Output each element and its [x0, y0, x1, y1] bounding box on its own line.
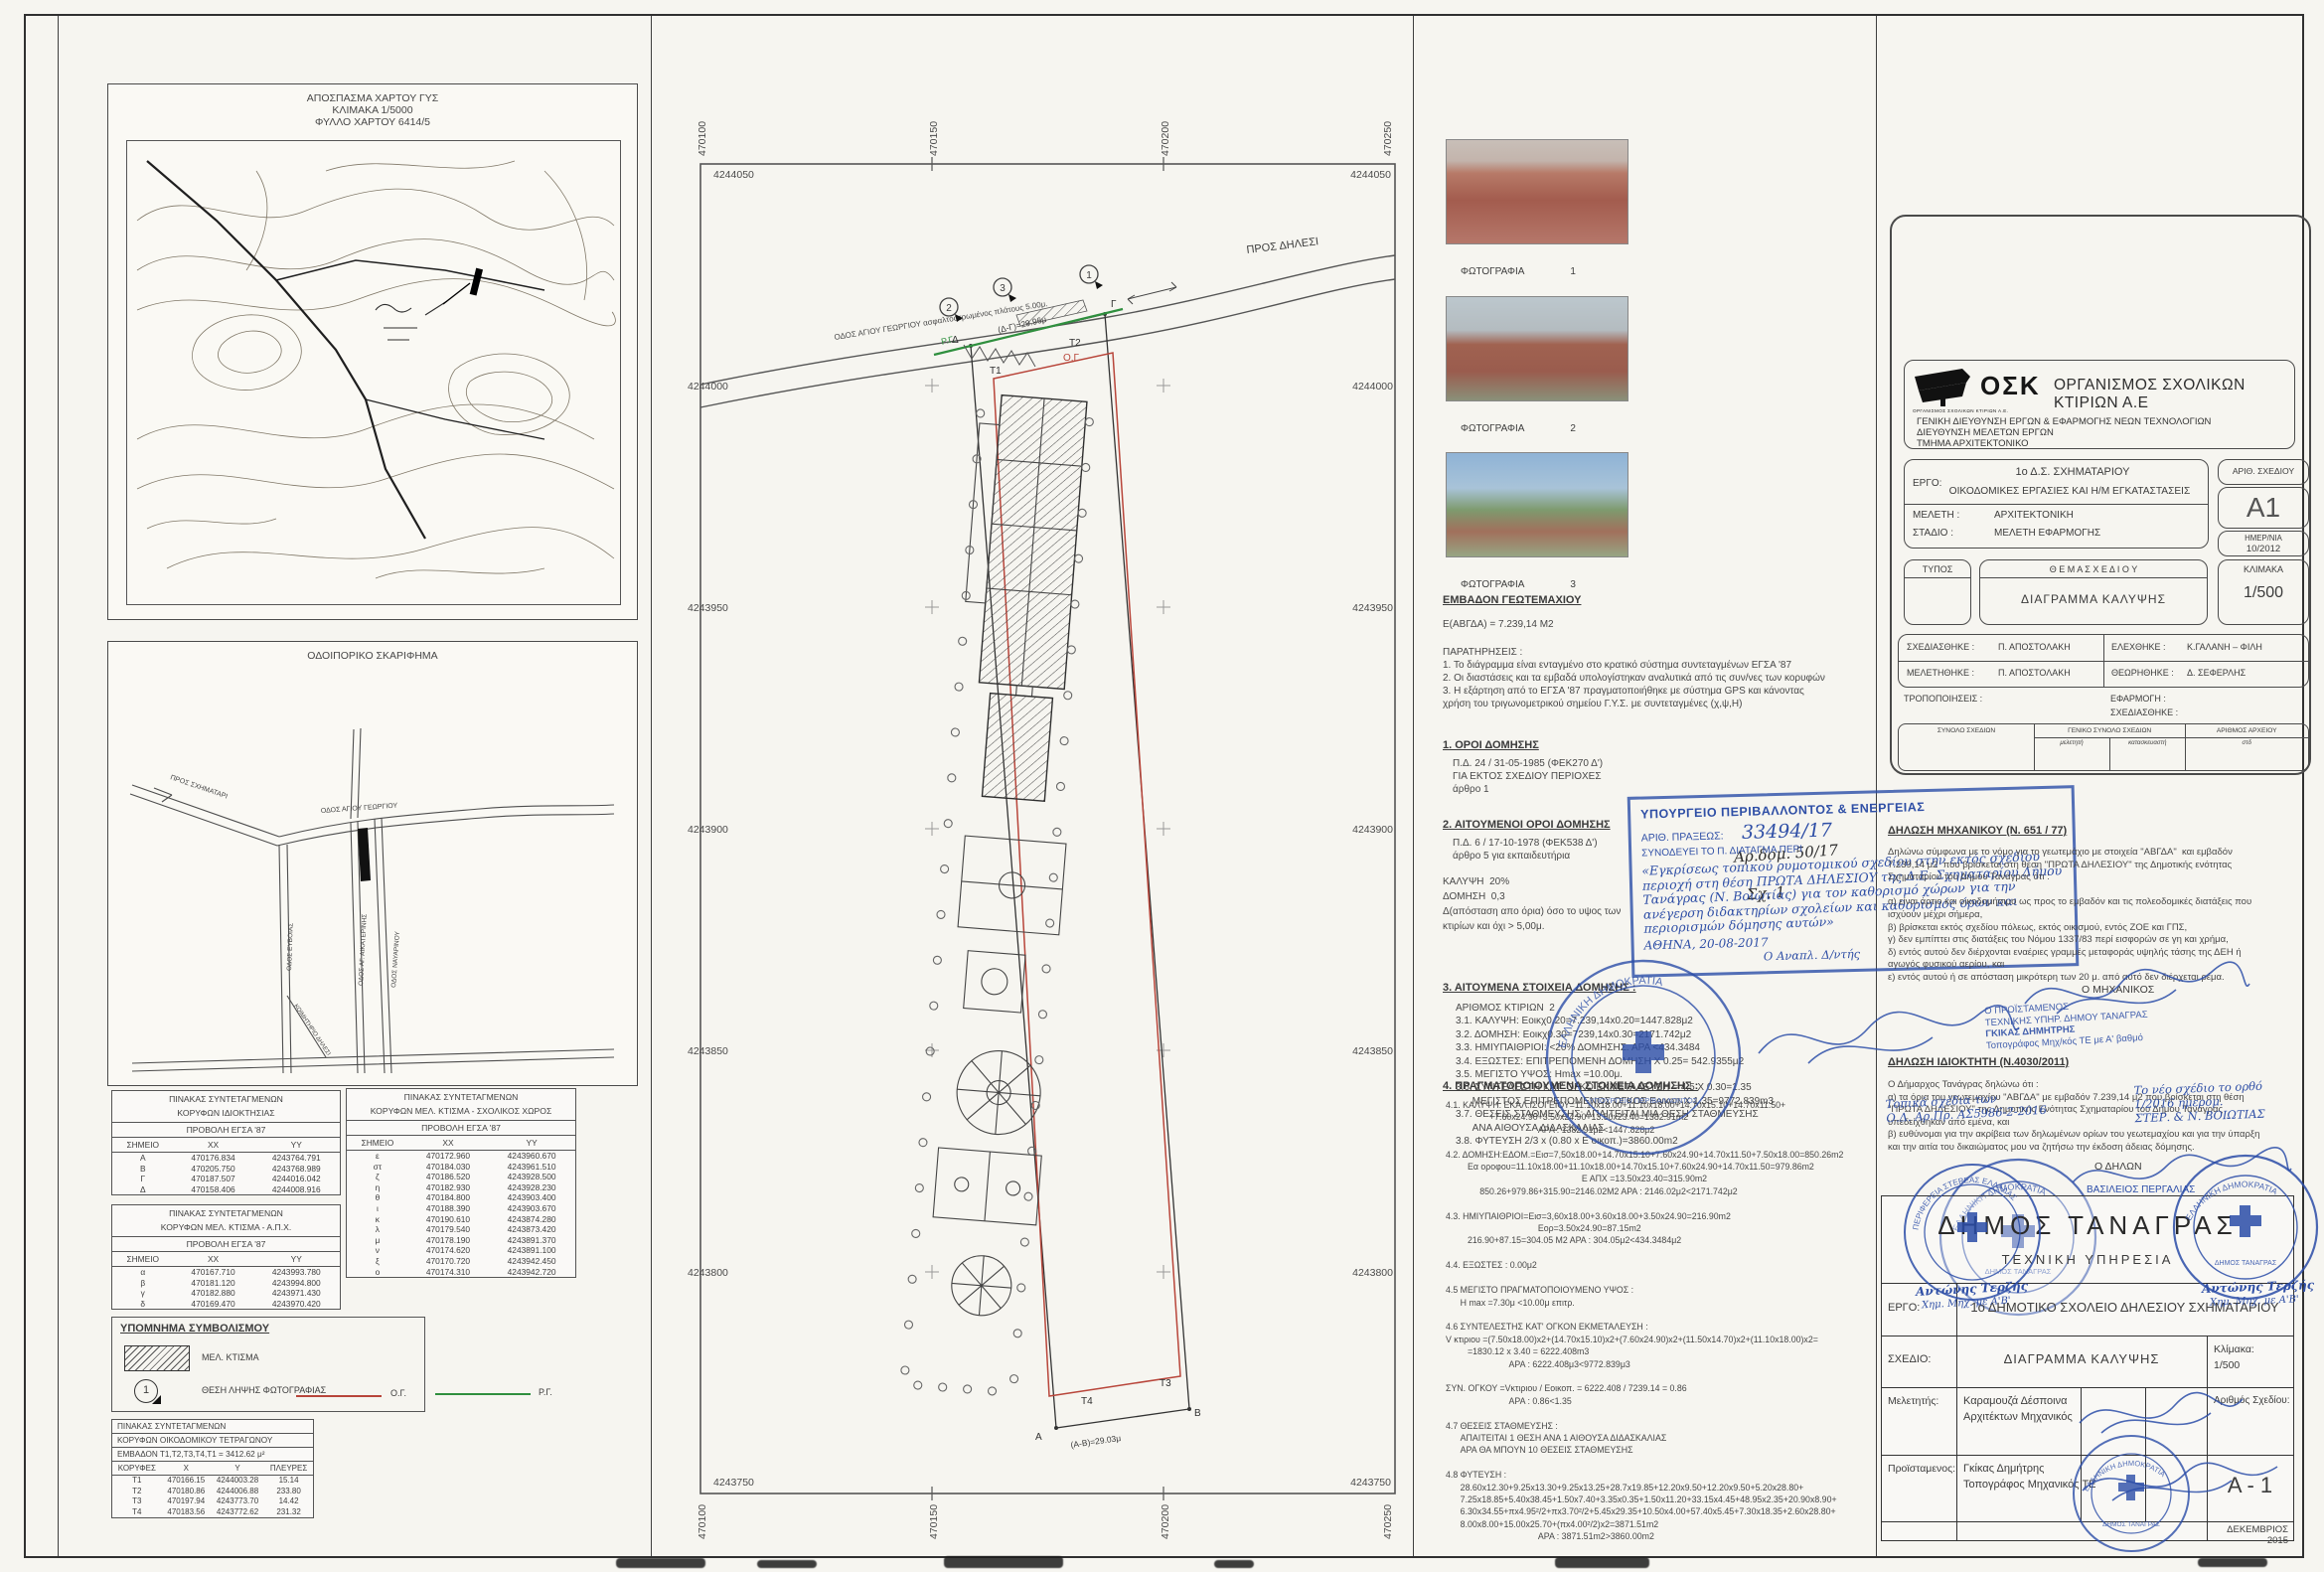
og-line-sample [296, 1395, 382, 1397]
table-row: ε470172.9604243960.670 [347, 1151, 575, 1162]
table-row: δ470169.4704243970.420 [112, 1299, 340, 1310]
table-cell: Β [112, 1164, 174, 1175]
table-row: ν470174.6204243891.100 [347, 1245, 575, 1256]
table-cell: Α [112, 1153, 174, 1164]
table-cell: 470180.86 [162, 1487, 211, 1497]
table-row: Γ470187.5074244016.042 [112, 1174, 340, 1184]
table-cell: 4243764.791 [253, 1153, 340, 1164]
area-value: Ε(ΑΒΓΔΑ) = 7.239,14 Μ2 [1443, 618, 1554, 631]
svg-text:ΟΔΟΣ ΕΥΒΟΙΑΣ: ΟΔΟΣ ΕΥΒΟΙΑΣ [286, 923, 295, 971]
table-row: θ470184.8004243903.400 [347, 1192, 575, 1203]
table-cell: 470166.15 [162, 1476, 211, 1487]
legend-box: ΥΠΟΜΝΗΜΑ ΣΥΜΒΟΛΙΣΜΟΥ ΜΕΛ. ΚΤΙΣΜΑ 1 ΘΕΣΗ … [111, 1317, 425, 1412]
svg-text:Τ4: Τ4 [1081, 1396, 1093, 1407]
subject-label: Θ Ε Μ Α Σ Χ Ε Δ Ι Ο Υ [1980, 564, 2207, 578]
table-cell: 233.80 [264, 1487, 313, 1497]
legend-label-og: Ο.Γ. [390, 1388, 406, 1398]
owner-declaration-title: ΔΗΛΩΣΗ ΙΔΙΟΚΤΗΤΗ (Ν.4030/2011) [1888, 1056, 2069, 1068]
project-box: ΕΡΓΟ: 1ο Δ.Σ. ΣΧΗΜΑΤΑΡΙΟΥ ΟΙΚΟΔΟΜΙΚΕΣ ΕΡ… [1904, 459, 2209, 549]
table-cell: 4243960.670 [488, 1151, 575, 1162]
table-area: ΕΜΒΑΔΟΝ Τ1,Τ2,Τ3,Τ4,Τ1 = 3412.62 μ² [112, 1448, 313, 1462]
table-row: η470182.9304243928.230 [347, 1182, 575, 1193]
drawn-label: ΣΧΕΔΙΑΣΘΗΚΕ : [1907, 642, 1974, 652]
photo-2 [1446, 296, 1628, 401]
muni-designer-name: Καραμουζά Δέσποινα [1963, 1395, 2067, 1407]
table-cell: 470158.406 [174, 1184, 253, 1195]
table-cell: 470174.620 [408, 1245, 488, 1256]
scan-artifact [757, 1560, 817, 1568]
table-row: Α470176.8344243764.791 [112, 1153, 340, 1164]
table-cell: 470187.507 [174, 1174, 253, 1184]
site-plan: 470100 470150 470200 470250 470100 47015… [686, 94, 1401, 1545]
svg-text:470250: 470250 [1382, 121, 1394, 156]
table-cell: 470170.720 [408, 1256, 488, 1267]
table-cell: μ [347, 1235, 408, 1246]
muni-head-label: Προϊσταμενος: [1888, 1463, 1955, 1475]
table-cell: 470172.960 [408, 1151, 488, 1162]
table-cell: 4243942.720 [488, 1267, 575, 1278]
svg-text:ΠΡΟΣ ΣΧΗΜΑΤΑΡΙ: ΠΡΟΣ ΣΧΗΜΑΤΑΡΙ [169, 774, 229, 800]
table-cell: 4244016.042 [253, 1174, 340, 1184]
table-row: Τ3470197.944243773.7014.42 [112, 1496, 313, 1507]
table-cell: 4243768.989 [253, 1164, 340, 1175]
svg-text:470100: 470100 [697, 1504, 708, 1539]
coords-table-school-area: ΠΙΝΑΚΑΣ ΣΥΝΤΕΤΑΓΜΕΝΩΝ ΚΟΡΥΦΩΝ ΜΕΛ. ΚΤΙΣΜ… [346, 1088, 576, 1278]
table-cell: 470205.750 [174, 1164, 253, 1175]
table-cell: 4243874.280 [488, 1214, 575, 1225]
files-sub-c: στδ [2185, 739, 2308, 746]
topographic-map [126, 140, 621, 605]
legend-label-photo: ΘΕΣΗ ΛΗΨΗΣ ΦΩΤΟΓΡΑΦΙΑΣ [202, 1385, 326, 1395]
table-row: Β470205.7504243768.989 [112, 1164, 340, 1175]
map-scale: ΚΛΙΜΑΚΑ 1/5000 [108, 104, 637, 116]
drawn-value: Π. ΑΠΟΣΤΟΛΑΚΗ [1998, 642, 2071, 652]
svg-text:1: 1 [1086, 270, 1092, 281]
svg-text:4243800: 4243800 [1352, 1267, 1393, 1279]
column-header: YY [488, 1136, 575, 1151]
column-header: YY [253, 1252, 340, 1267]
sheet-no-label: ΑΡΙΘ. ΣΧΕΔΙΟΥ [2218, 459, 2309, 485]
table-cell: Τ2 [112, 1487, 162, 1497]
table-subtitle: ΚΟΡΥΦΩΝ ΜΕΛ. ΚΤΙΣΜΑ - ΣΧΟΛΙΚΟΣ ΧΩΡΟΣ [347, 1103, 575, 1117]
table-cell: 4244008.916 [253, 1184, 340, 1195]
study-value: ΑΡΧΙΤΕΚΤΟΝΙΚΗ [1994, 510, 2074, 521]
scan-artifact [2198, 1558, 2267, 1567]
panel-separator-1 [651, 16, 652, 1556]
head-engineer-stamp: Ο ΠΡΟΪΣΤΑΜΕΝΟΣΤΕΧΝΙΚΗΣ ΥΠΗΡ. ΔΗΜΟΥ ΤΑΝΑΓ… [1984, 998, 2149, 1052]
table-cell: 4243971.430 [253, 1288, 340, 1299]
legend-title: ΥΠΟΜΝΗΜΑ ΣΥΜΒΟΛΙΣΜΟΥ [120, 1323, 424, 1335]
area-title: ΕΜΒΑΔΟΝ ΓΕΩΤΕΜΑΧΙΟΥ [1443, 594, 1581, 606]
table-title: ΠΙΝΑΚΑΣ ΣΥΝΤΕΤΑΓΜΕΝΩΝ [112, 1091, 340, 1105]
svg-text:470250: 470250 [1382, 1504, 1394, 1539]
table-row: στ470184.0304243961.510 [347, 1162, 575, 1173]
legend-label-rg: Ρ.Γ. [539, 1387, 552, 1397]
table-cell: ο [347, 1267, 408, 1278]
files-strip: ΣΥΝΟΛΟ ΣΧΕΔΙΩΝ ΓΕΝΙΚΟ ΣΥΝΟΛΟ ΣΧΕΔΙΩΝ ΑΡΙ… [1898, 723, 2309, 771]
svg-text:4244050: 4244050 [1350, 169, 1391, 181]
table-cell: 4243773.70 [211, 1496, 264, 1507]
table-cell: 470174.310 [408, 1267, 488, 1278]
muni-sheet-number: Α - 1 [2207, 1473, 2293, 1498]
osk-header-box: ΟΣΚ ΟΡΓΑΝΙΣΜΟΣ ΣΧΟΛΙΚΩΝ ΚΤΙΡΙΩΝ Α.Ε. ΟΡΓ… [1904, 360, 2295, 449]
round-feature [950, 1254, 1014, 1319]
table-projection: ΠΡΟΒΟΛΗ ΕΓΣΑ '87 [112, 1236, 340, 1252]
table-row: κ470190.6104243874.280 [347, 1214, 575, 1225]
subject-value: ΔΙΑΓΡΑΜΜΑ ΚΑΛΥΨΗΣ [1980, 592, 2207, 606]
studied-label: ΜΕΛΕΤΗΘΗΚΕ : [1907, 668, 1974, 678]
column-header: Y [211, 1462, 264, 1476]
svg-text:470150: 470150 [928, 121, 940, 156]
column-header: ΣΗΜΕΙΟ [112, 1252, 174, 1267]
scan-artifact [616, 1558, 705, 1568]
table-cell: 4243961.510 [488, 1162, 575, 1173]
svg-text:4243850: 4243850 [688, 1045, 728, 1057]
muni-designer-label: Μελετητής: [1888, 1395, 1938, 1407]
stamp-cross-emblem [1623, 1031, 1664, 1073]
column-header: ΣΗΜΕΙΟ [347, 1136, 408, 1151]
scan-artifact [1214, 1560, 1254, 1568]
pad-b [964, 951, 1025, 1013]
column-header: ΠΛΕΥΡΕΣ [264, 1462, 313, 1476]
table-cell: ζ [347, 1172, 408, 1182]
column-header: X [162, 1462, 211, 1476]
studied-value: Π. ΑΠΟΣΤΟΛΑΚΗ [1998, 668, 2071, 678]
osk-logo [1913, 367, 1976, 408]
svg-text:4243750: 4243750 [713, 1477, 754, 1489]
table-row: Τ2470180.864244006.88233.80 [112, 1487, 313, 1497]
school-buildings [900, 393, 1101, 1398]
approved-value: Δ. ΣΕΦΕΡΛΗΣ [2187, 668, 2246, 678]
muni-drawing-label: ΣΧΕΔΙΟ: [1888, 1353, 1932, 1365]
checked-label: ΕΛΕΧΘΗΚΕ : [2111, 642, 2166, 652]
scan-artifact [1555, 1557, 1649, 1568]
svg-text:ΟΔΟΣ ΑΓΙΟΥ ΓΕΩΡΓΙΟΥ: ΟΔΟΣ ΑΓΙΟΥ ΓΕΩΡΓΙΟΥ [321, 803, 398, 815]
table-cell: 470178.190 [408, 1235, 488, 1246]
svg-text:470200: 470200 [1160, 121, 1171, 156]
svg-text:4243950: 4243950 [688, 602, 728, 614]
table-cell: β [112, 1278, 174, 1289]
checked-value: Κ.ΓΑΛΑΝΗ – ΦΙΛΗ [2187, 642, 2262, 652]
head-round-stamp: ΕΛΛΗΝΙΚΗ ΔΗΜΟΚΡΑΤΙΑ ΔΗΜΟΣ ΤΑΝΑΓΡΑΣ [2067, 1429, 2196, 1558]
table-cell: 470182.880 [174, 1288, 253, 1299]
table-cell: 470186.520 [408, 1172, 488, 1182]
table-cell: 231.32 [264, 1507, 313, 1518]
stage-label: ΣΤΑΔΙΟ : [1913, 528, 1953, 539]
table-row: λ470179.5404243873.420 [347, 1224, 575, 1235]
map-annotation-marks [376, 301, 447, 340]
table-subtitle: ΚΟΡΥΦΩΝ ΙΔΙΟΚΤΗΣΙΑΣ [112, 1105, 340, 1119]
table-title: ΠΙΝΑΚΑΣ ΣΥΝΤΕΤΑΓΜΕΝΩΝ [112, 1420, 313, 1434]
table-cell: 4243772.62 [211, 1507, 264, 1518]
osk-dept-1: ΓΕΝΙΚΗ ΔΙΕΥΘΥΝΣΗ ΕΡΓΩΝ & ΕΦΑΡΜΟΓΗΣ ΝΕΩΝ … [1917, 416, 2211, 427]
column-header: ΚΟΡΥΦΕΣ [112, 1462, 162, 1476]
table-cell: Τ1 [112, 1476, 162, 1487]
svg-text:470100: 470100 [697, 121, 708, 156]
coords-table-apx: ΠΙΝΑΚΑΣ ΣΥΝΤΕΤΑΓΜΕΝΩΝ ΚΟΡΥΦΩΝ ΜΕΛ. ΚΤΙΣΜ… [111, 1204, 341, 1310]
panel-separator-2 [1413, 16, 1414, 1556]
muni-designer-title: Αρχιτέκτων Μηχανικός [1963, 1411, 2073, 1423]
table-row: ζ470186.5204243928.500 [347, 1172, 575, 1182]
svg-text:4243900: 4243900 [688, 824, 728, 836]
table-cell: Τ3 [112, 1496, 162, 1507]
table-cell: 470197.94 [162, 1496, 211, 1507]
legend-label-building: ΜΕΛ. ΚΤΙΣΜΑ [202, 1352, 259, 1362]
svg-text:4243850: 4243850 [1352, 1045, 1393, 1057]
credits-box: ΣΧΕΔΙΑΣΘΗΚΕ : Π. ΑΠΟΣΤΟΛΑΚΗ ΕΛΕΧΘΗΚΕ : Κ… [1898, 634, 2309, 688]
ministry-round-stamp: ΕΛΛΗΝΙΚΗ ΔΗΜΟΚΡΑΤΙΑ ΥΠΟΥΡΓΕΙΟ ΠΕΡΙΒΑΛΛΟΝ… [1538, 952, 1749, 1163]
sketch-title: ΟΔΟΙΠΟΡΙΚΟ ΣΚΑΡΙΦΗΜΑ [108, 650, 637, 662]
stamp-act-label: ΑΡΙΘ. ΠΡΑΞΕΩΣ: [1641, 830, 1724, 844]
column-header: XX [174, 1138, 253, 1153]
table-subtitle: ΚΟΡΥΦΩΝ ΟΙΚΟΔΟΜΙΚΟΥ ΤΕΤΡΑΓΩΝΟΥ [112, 1434, 313, 1448]
svg-text:ΔΗΜΟΣ ΤΑΝΑΓΡΑΣ: ΔΗΜΟΣ ΤΑΝΑΓΡΑΣ [2215, 1260, 2277, 1267]
photo-1 [1446, 139, 1628, 244]
table-cell: 4243970.420 [253, 1299, 340, 1310]
table-cell: 470183.56 [162, 1507, 211, 1518]
photo-1-caption: ΦΩΤΟΓΡΑΦΙΑ1 [1461, 266, 1576, 277]
map-title: ΑΠΟΣΠΑΣΜΑ ΧΑΡΤΟΥ ΓΥΣ [108, 92, 637, 104]
table-subtitle: ΚΟΡΥΦΩΝ ΜΕΛ. ΚΤΙΣΜΑ - Α.Π.Χ. [112, 1219, 340, 1233]
svg-text:Τ3: Τ3 [1160, 1378, 1171, 1389]
to-dilesi-label: ΠΡΟΣ ΔΗΛΕΣΙ [1246, 236, 1319, 256]
files-sub-b: κατασκευαστή [2109, 739, 2185, 746]
table-row: Τ4470183.564243772.62231.32 [112, 1507, 313, 1518]
muni-sheetno-label: Αριθμός Σχεδίου: [2214, 1395, 2290, 1406]
table-cell: θ [347, 1192, 408, 1203]
table-cell: Γ [112, 1174, 174, 1184]
scale-box: ΚΛΙΜΑΚΑ 1/500 [2218, 559, 2309, 625]
table-row: μ470178.1904243891.370 [347, 1235, 575, 1246]
svg-text:Τ1: Τ1 [990, 366, 1002, 377]
table-cell: ξ [347, 1256, 408, 1267]
date-label: ΗΜΕΡ/ΝΙΑ [2219, 534, 2308, 543]
column-header: ΣΗΜΕΙΟ [112, 1138, 174, 1153]
muni-scale-value: 1/500 [2214, 1359, 2240, 1371]
table-cell: 470167.710 [174, 1267, 253, 1278]
margin-line [58, 16, 59, 1556]
table-cell: 4243891.100 [488, 1245, 575, 1256]
table-row: ξ470170.7204243942.450 [347, 1256, 575, 1267]
hatch-swatch [124, 1345, 190, 1371]
table-cell: 4243873.420 [488, 1224, 575, 1235]
table-cell: 470188.390 [408, 1203, 488, 1214]
muni-date: ΔΕΚΕΜΒΡΙΟΣ 2015 [2207, 1524, 2288, 1546]
map-parcel-marker [470, 268, 483, 296]
svg-text:ΔΗΜΟΣ ΤΑΝΑΓΡΑΣ: ΔΗΜΟΣ ΤΑΝΑΓΡΑΣ [2102, 1521, 2160, 1528]
svg-text:Δ: Δ [952, 335, 959, 346]
files-col-1: ΣΥΝΟΛΟ ΣΧΕΔΙΩΝ [1899, 727, 2034, 734]
table-cell: 470176.834 [174, 1153, 253, 1164]
table-cell: 470184.800 [408, 1192, 488, 1203]
svg-text:Ο.Γ.: Ο.Γ. [1063, 353, 1081, 364]
sheet-no-value: Α1 [2218, 487, 2309, 529]
table-cell: 4243993.780 [253, 1267, 340, 1278]
date-value: 10/2012 [2219, 544, 2308, 554]
muni-scale-label: Κλίμακα: [2214, 1343, 2254, 1355]
svg-text:4243750: 4243750 [1350, 1477, 1391, 1489]
route-sketch: ΠΡΟΣ ΣΧΗΜΑΤΑΡΙ ΟΔΟΣ ΑΓΙΟΥ ΓΕΩΡΓΙΟΥ ΟΔΟΣ … [112, 668, 631, 1079]
table-cell: α [112, 1267, 174, 1278]
table-row: Δ470158.4064244008.916 [112, 1184, 340, 1195]
svg-text:2: 2 [946, 303, 952, 314]
table-cell: 470184.030 [408, 1162, 488, 1173]
table-row: α470167.7104243993.780 [112, 1267, 340, 1278]
remarks: ΠΑΡΑΤΗΡΗΣΕΙΣ : 1. Το διάγραμμα είναι εντ… [1443, 646, 1880, 710]
map-extract-box: ΑΠΟΣΠΑΣΜΑ ΧΑΡΤΟΥ ΓΥΣ ΚΛΙΜΑΚΑ 1/5000 ΦΥΛΛ… [107, 83, 638, 620]
study-label: ΜΕΛΕΤΗ : [1913, 510, 1959, 521]
svg-text:470150: 470150 [928, 1504, 940, 1539]
stage-value: ΜΕΛΕΤΗ ΕΦΑΡΜΟΓΗΣ [1994, 528, 2100, 539]
svg-text:470200: 470200 [1160, 1504, 1171, 1539]
table-cell: 4243903.670 [488, 1203, 575, 1214]
svg-text:4243900: 4243900 [1352, 824, 1393, 836]
table-row: Τ1470166.154244003.2815.14 [112, 1476, 313, 1487]
plan-frame [700, 164, 1395, 1493]
muni-head-name: Γκίκας Δημήτρης [1963, 1463, 2044, 1475]
photo-3 [1446, 452, 1628, 557]
project-line-2: ΟΙΚΟΔΟΜΙΚΕΣ ΕΡΓΑΣΙΕΣ ΚΑΙ Η/Μ ΕΓΚΑΤΑΣΤΑΣΕ… [1935, 486, 2205, 497]
photo-direction-icon [152, 1395, 161, 1404]
svg-text:ΥΠΟΥΡΓΕΙΟ ΠΕΡΙΒΑΛΛΟΝΤΟΣ: ΥΠΟΥΡΓΕΙΟ ΠΕΡΙΒΑΛΛΟΝΤΟΣ [1590, 1096, 1698, 1105]
table-cell: 4243903.400 [488, 1192, 575, 1203]
fence [964, 345, 1035, 367]
photo-2-caption: ΦΩΤΟΓΡΑΦΙΑ2 [1461, 423, 1576, 434]
table-cell: 4244006.88 [211, 1487, 264, 1497]
table-title: ΠΙΝΑΚΑΣ ΣΥΝΤΕΤΑΓΜΕΝΩΝ [347, 1089, 575, 1103]
table-row: ι470188.3904243903.670 [347, 1203, 575, 1214]
files-col-3: ΑΡΙΘΜΟΣ ΑΡΧΕΙΟΥ [2185, 727, 2308, 734]
svg-text:ΟΔΟΣ ΝΑΥΑΡΙΝΟΥ: ΟΔΟΣ ΝΑΥΑΡΙΝΟΥ [390, 930, 401, 988]
drawn2-label: ΣΧΕΔΙΑΣΘΗΚΕ : [2110, 707, 2178, 717]
table-cell: 4243942.450 [488, 1256, 575, 1267]
column-header: XX [174, 1252, 253, 1267]
table-cell: 470181.120 [174, 1278, 253, 1289]
modifications-label: ΤΡΟΠΟΠΟΙΗΣΕΙΣ : [1904, 694, 1982, 704]
table-cell: ν [347, 1245, 408, 1256]
table-cell: κ [347, 1214, 408, 1225]
svg-text:Γ: Γ [1111, 299, 1117, 310]
table-cell: 14.42 [264, 1496, 313, 1507]
table-cell: στ [347, 1162, 408, 1173]
engineer-sig-label: Ο ΜΗΧΑΝΙΚΟΣ [2082, 984, 2154, 996]
svg-text:4244050: 4244050 [713, 169, 754, 181]
table-cell: δ [112, 1299, 174, 1310]
stamp-act-number: 33494/17 [1742, 820, 1833, 844]
section2-title: 2. ΑΙΤΟΥΜΕΝΟΙ ΟΡΟΙ ΔΟΜΗΣΗΣ [1443, 819, 1611, 831]
table-cell: 470182.930 [408, 1182, 488, 1193]
osk-logo-text: ΟΣΚ [1980, 371, 2041, 401]
svg-text:4244000: 4244000 [1352, 381, 1393, 393]
table-cell: 470179.540 [408, 1224, 488, 1235]
table-cell: 4243891.370 [488, 1235, 575, 1246]
table-cell: γ [112, 1288, 174, 1299]
drawing-sheet: ΑΠΟΣΠΑΣΜΑ ΧΑΡΤΟΥ ΓΥΣ ΚΛΙΜΑΚΑ 1/5000 ΦΥΛΛ… [0, 0, 2324, 1572]
application-label: ΕΦΑΡΜΟΓΗ : [2110, 694, 2166, 704]
table-row: ο470174.3104243942.720 [347, 1267, 575, 1278]
engineer-declaration-body: Δηλώνω σύμφωνα με το νόμο για το γεωτεμά… [1888, 847, 2315, 985]
photo-3-caption: ΦΩΤΟΓΡΑΦΙΑ3 [1461, 579, 1576, 590]
osk-name: ΟΡΓΑΝΙΣΜΟΣ ΣΧΟΛΙΚΩΝ ΚΤΙΡΙΩΝ Α.Ε [2054, 377, 2294, 412]
table-row: γ470182.8804243971.430 [112, 1288, 340, 1299]
table-title: ΠΙΝΑΚΑΣ ΣΥΝΤΕΤΑΓΜΕΝΩΝ [112, 1205, 340, 1219]
date-box: ΗΜΕΡ/ΝΙΑ 10/2012 [2218, 531, 2309, 556]
table-cell: 4243928.500 [488, 1172, 575, 1182]
svg-text:4243800: 4243800 [688, 1267, 728, 1279]
section1-body: Π.Δ. 24 / 31-05-1985 (ΦΕΚ270 Δ') ΓΙΑ ΕΚΤ… [1453, 757, 1870, 796]
type-label: ΤΥΠΟΣ [1905, 564, 1970, 578]
table-cell: 15.14 [264, 1476, 313, 1487]
map-sheet: ΦΥΛΛΟ ΧΑΡΤΟΥ 6414/5 [108, 116, 637, 128]
subject-box: Θ Ε Μ Α Σ Χ Ε Δ Ι Ο Υ ΔΙΑΓΡΑΜΜΑ ΚΑΛΥΨΗΣ [1979, 559, 2208, 625]
road [700, 255, 1395, 407]
svg-text:3: 3 [1000, 283, 1006, 294]
project-line-1: 1ο Δ.Σ. ΣΧΗΜΑΤΑΡΙΟΥ [1944, 466, 2201, 478]
section1-title: 1. ΟΡΟΙ ΔΟΜΗΣΗΣ [1443, 739, 1539, 751]
svg-text:Α: Α [1035, 1432, 1042, 1443]
table-projection: ΠΡΟΒΟΛΗ ΕΓΣΑ '87 [112, 1122, 340, 1138]
svg-text:4243950: 4243950 [1352, 602, 1393, 614]
table-cell: λ [347, 1224, 408, 1235]
table-cell: 4243928.230 [488, 1182, 575, 1193]
table-cell: 470169.470 [174, 1299, 253, 1310]
osk-dept-3: ΤΜΗΜΑ ΑΡΧΙΤΕΚΤΟΝΙΚΟ [1917, 438, 2029, 449]
files-sub-a: μελετητή [2034, 739, 2109, 746]
svg-text:ΚΟΙΜΗΤΗΡΙΟ ΔΗΛΕΣΙ: ΚΟΙΜΗΤΗΡΙΟ ΔΗΛΕΣΙ [292, 1004, 331, 1057]
scale-value: 1/500 [2219, 584, 2308, 602]
section4-body: 4.1. ΚΑΛΥΨΗ: ΕΚΑΛ.ΙΣΟΓΕΙΟΥ=11.10x18.00+1… [1446, 1099, 1886, 1543]
osk-logo-caption: ΟΡΓΑΝΙΣΜΟΣ ΣΧΟΛΙΚΩΝ ΚΤΙΡΙΩΝ Α.Ε. [1913, 408, 2008, 413]
column-header: YY [253, 1138, 340, 1153]
rg-line-sample [435, 1393, 531, 1395]
building-2 [982, 694, 1052, 802]
scan-artifact [944, 1556, 1063, 1568]
muni-drawing-value: ΔΙΑΓΡΑΜΜΑ ΚΑΛΥΨΗΣ [1956, 1351, 2207, 1366]
table-projection: ΠΡΟΒΟΛΗ ΕΓΣΑ '87 [347, 1120, 575, 1136]
table-cell: η [347, 1182, 408, 1193]
scale-label: ΚΛΙΜΑΚΑ [2219, 564, 2308, 574]
engineer-declaration-title: ΔΗΛΩΣΗ ΜΗΧΑΝΙΚΟΥ (Ν. 651 / 77) [1888, 825, 2067, 837]
table-row: β470181.1204243994.800 [112, 1278, 340, 1289]
type-box: ΤΥΠΟΣ [1904, 559, 1971, 625]
svg-text:(Α-Β)=29.03μ: (Α-Β)=29.03μ [1070, 1433, 1122, 1450]
table-cell: ε [347, 1151, 408, 1162]
table-cell: Δ [112, 1184, 174, 1195]
table-cell: 470190.610 [408, 1214, 488, 1225]
svg-text:Β: Β [1194, 1408, 1201, 1419]
column-header: XX [408, 1136, 488, 1151]
table-cell: ι [347, 1203, 408, 1214]
table-cell: 4243994.800 [253, 1278, 340, 1289]
table-cell: Τ4 [112, 1507, 162, 1518]
coords-table-ownership: ΠΙΝΑΚΑΣ ΣΥΝΤΕΤΑΓΜΕΝΩΝ ΚΟΡΥΦΩΝ ΙΔΙΟΚΤΗΣΙΑ… [111, 1090, 341, 1195]
handwritten-note-right: Το νέο σχέδιο το ορθό 1/2016 ημερομ. ΣΤΕ… [2133, 1079, 2265, 1126]
table-cell: 4244003.28 [211, 1476, 264, 1487]
svg-text:ΟΔΟΣ ΑΓ. ΑΙΚΑΤΕΡΙΝΗΣ: ΟΔΟΣ ΑΓ. ΑΙΚΑΤΕΡΙΝΗΣ [358, 914, 369, 987]
osk-dept-2: ΔΙΕΥΘΥΝΣΗ ΜΕΛΕΤΩΝ ΕΡΓΩΝ [1917, 427, 2054, 438]
coords-table-block: ΠΙΝΑΚΑΣ ΣΥΝΤΕΤΑΓΜΕΝΩΝ ΚΟΡΥΦΩΝ ΟΙΚΟΔΟΜΙΚΟ… [111, 1419, 314, 1518]
approved-label: ΘΕΩΡΗΘΗΚΕ : [2111, 668, 2174, 678]
files-col-2: ΓΕΝΙΚΟ ΣΥΝΟΛΟ ΣΧΕΔΙΩΝ [2034, 727, 2185, 734]
route-sketch-box: ΟΔΟΙΠΟΡΙΚΟ ΣΚΑΡΙΦΗΜΑ ΠΡΟΣ ΣΧΗΜΑΤΑΡΙ ΟΔΟΣ… [107, 641, 638, 1086]
svg-text:Τ2: Τ2 [1069, 338, 1081, 349]
